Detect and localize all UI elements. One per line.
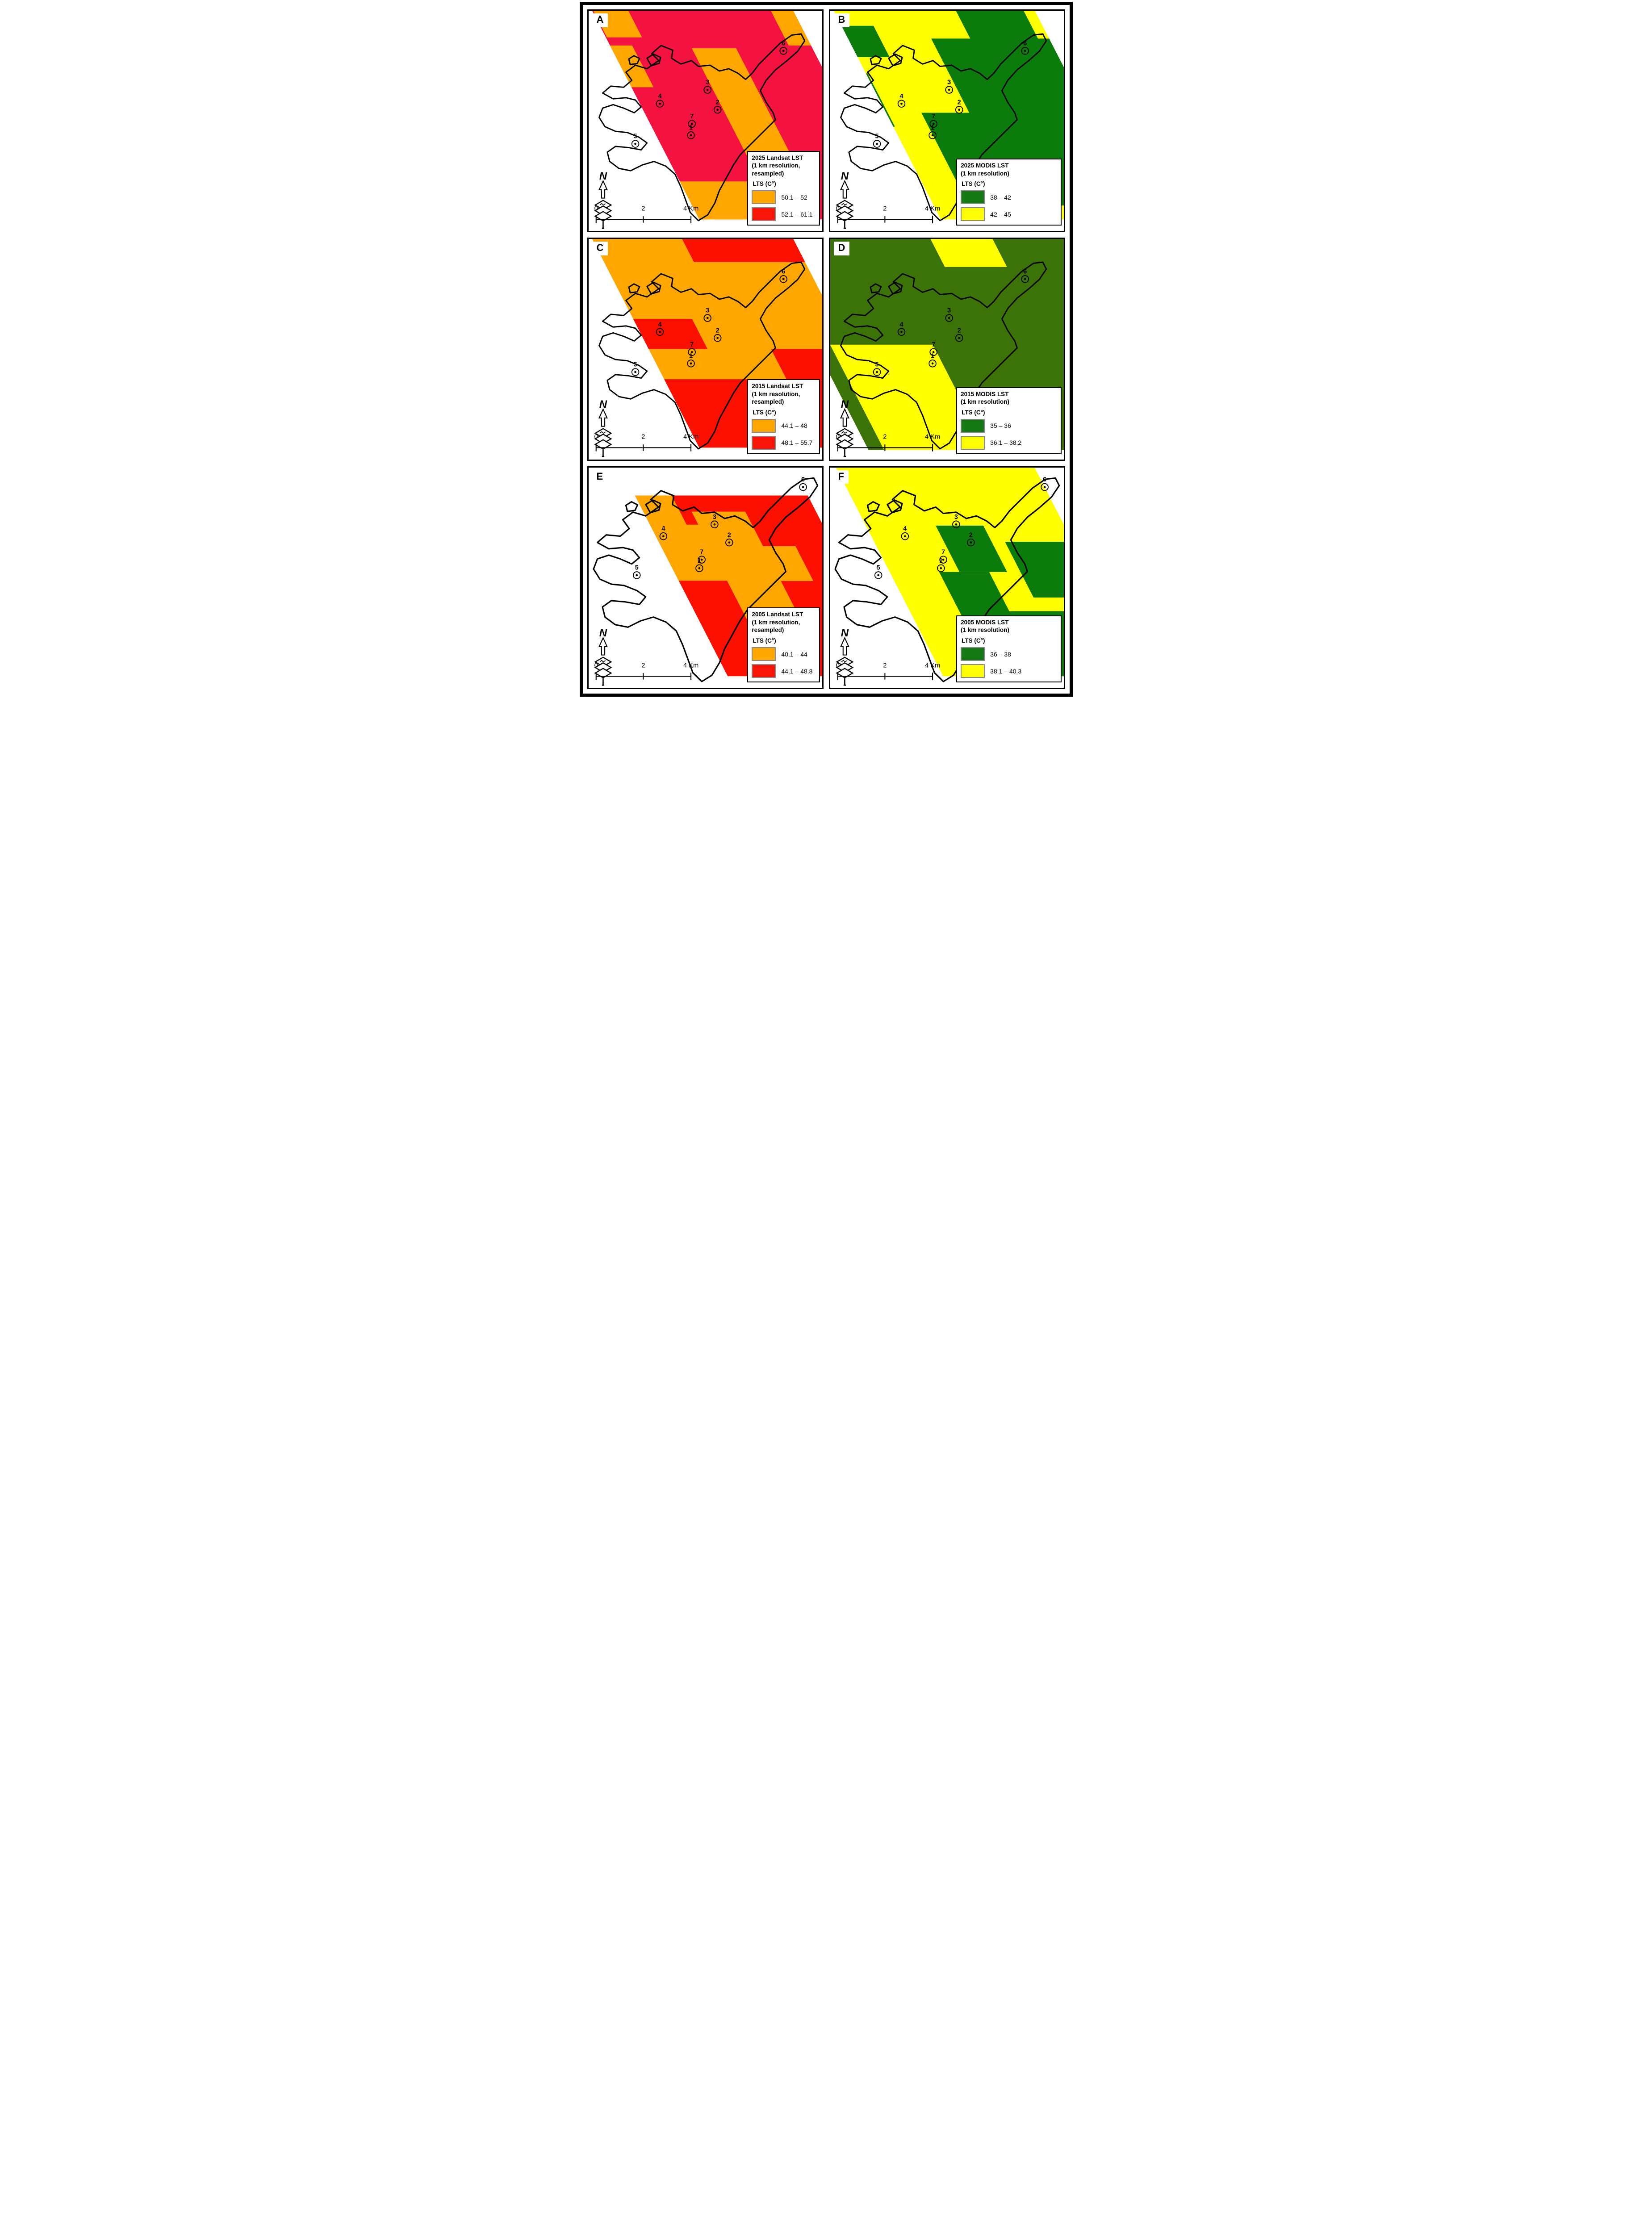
- scale-label-2: 2: [883, 434, 887, 441]
- legend-range: 50.1 – 52: [781, 194, 807, 201]
- sample-point-dot: [728, 541, 730, 544]
- legend-entry: 50.1 – 52: [752, 190, 815, 204]
- legend-title-line: (1 km resolution): [961, 398, 1057, 406]
- legend-range: 36.1 – 38.2: [990, 439, 1021, 446]
- sample-point-dot: [636, 574, 638, 576]
- sample-point-label: 7: [700, 548, 703, 556]
- sample-point-dot: [782, 50, 784, 52]
- scale-label-0: 0: [594, 205, 598, 213]
- panel-a: 1234567 N 0 2 4 Km A 2025 Landsat LST (1…: [587, 9, 824, 232]
- panel-f: 1234567 N 0 2 4 Km F 2005 MODIS LST (1 k…: [829, 466, 1065, 689]
- figure-grid: 1234567 N 0 2 4 Km A 2025 Landsat LST (1…: [580, 2, 1073, 697]
- sample-point-dot: [662, 535, 665, 537]
- sample-point-dot: [932, 351, 934, 353]
- sample-point-dot: [690, 363, 692, 365]
- legend-swatch: [961, 647, 985, 661]
- legend-unit: LTS (C°): [962, 409, 1057, 416]
- legend-swatch: [752, 190, 776, 204]
- legend-entry: 42 – 45: [961, 207, 1057, 221]
- legend-title-line: 2005 MODIS LST: [961, 619, 1057, 627]
- scale-label-2: 2: [641, 662, 645, 669]
- panel-b: 1234567 N 0 2 4 Km B 2025 MODIS LST (1 k…: [829, 9, 1065, 232]
- legend-entry: 38 – 42: [961, 190, 1057, 204]
- sample-point-dot: [876, 371, 878, 373]
- north-arrow-icon: [595, 409, 611, 456]
- sample-point-dot: [900, 331, 903, 333]
- sample-point-label: 7: [690, 341, 694, 348]
- scale-bar: 0 2 4 Km: [594, 205, 698, 223]
- north-arrow-icon: [595, 638, 611, 685]
- legend-entry: 48.1 – 55.7: [752, 436, 815, 450]
- scale-label-0: 0: [836, 662, 839, 669]
- sample-point-dot: [690, 123, 693, 125]
- panel-letter: E: [592, 470, 608, 484]
- legend-title-line: (1 km resolution,: [752, 162, 815, 170]
- north-arrow-icon: [836, 638, 853, 685]
- scale-label-2: 2: [883, 205, 887, 213]
- sample-point-dot: [1024, 278, 1026, 280]
- legend-range: 38.1 – 40.3: [990, 668, 1021, 675]
- legend-title-line: (1 km resolution): [961, 170, 1057, 178]
- legend-swatch: [752, 647, 776, 661]
- legend-swatch: [752, 664, 776, 678]
- panel-letter: B: [834, 13, 850, 27]
- legend-swatch: [752, 419, 776, 433]
- legend-title-line: (1 km resolution,: [752, 619, 815, 627]
- legend: 2025 Landsat LST (1 km resolution, resam…: [747, 151, 820, 226]
- sample-point-label: 2: [727, 531, 731, 539]
- sample-point-label: 6: [1043, 476, 1046, 483]
- sample-point-label: 3: [947, 307, 951, 314]
- sample-point-label: 6: [782, 40, 785, 47]
- legend-range: 40.1 – 44: [781, 651, 807, 658]
- legend: 2005 Landsat LST (1 km resolution, resam…: [747, 607, 820, 682]
- legend-entry: 44.1 – 48: [752, 419, 815, 433]
- sample-point-label: 3: [706, 79, 709, 86]
- panel-letter: C: [592, 242, 608, 255]
- sample-point-label: 7: [690, 113, 694, 120]
- sample-point-label: 5: [875, 361, 878, 368]
- sample-point-label: 3: [706, 307, 709, 314]
- panel-d: 1234567 N 0 2 4 Km D 2015 MODIS LST (1 k…: [829, 238, 1065, 460]
- legend-title-line: (1 km resolution,: [752, 390, 815, 398]
- legend-range: 44.1 – 48.8: [781, 668, 812, 675]
- legend-unit: LTS (C°): [753, 409, 815, 416]
- legend-title-line: resampled): [752, 626, 815, 634]
- sample-point-label: 4: [658, 93, 662, 100]
- sample-point-label: 3: [947, 79, 951, 86]
- north-arrow-icon: [836, 409, 853, 456]
- scale-label-4km: 4 Km: [683, 205, 698, 213]
- sample-point-dot: [782, 278, 784, 280]
- legend-entry: 36.1 – 38.2: [961, 436, 1057, 450]
- sample-point-label: 4: [661, 525, 665, 532]
- sample-point-label: 7: [932, 113, 935, 120]
- scale-label-0: 0: [836, 205, 839, 213]
- sample-point-dot: [706, 317, 708, 319]
- scale-label-0: 0: [594, 434, 598, 441]
- sample-point-label: 7: [941, 548, 945, 556]
- sample-point-label: 2: [969, 531, 972, 539]
- sample-point-dot: [958, 337, 960, 339]
- sample-point-dot: [942, 558, 944, 560]
- sample-point-dot: [690, 134, 692, 137]
- sample-point-dot: [716, 109, 719, 111]
- scale-label-0: 0: [836, 434, 839, 441]
- sample-point-dot: [700, 558, 703, 560]
- scale-bar: 0 2 4 Km: [836, 662, 940, 680]
- scale-label-2: 2: [641, 205, 645, 213]
- scale-label-2: 2: [641, 434, 645, 441]
- sample-point-dot: [876, 143, 878, 145]
- legend-title-line: resampled): [752, 170, 815, 178]
- legend-unit: LTS (C°): [753, 180, 815, 187]
- sample-point-dot: [955, 523, 957, 526]
- legend-title-line: 2025 MODIS LST: [961, 162, 1057, 170]
- sample-point-label: 5: [875, 133, 878, 140]
- sample-point-dot: [634, 371, 636, 373]
- legend-swatch: [961, 190, 985, 204]
- legend-title-line: 2015 Landsat LST: [752, 382, 815, 390]
- sample-point-label: 2: [957, 99, 961, 106]
- sample-point-dot: [634, 143, 636, 145]
- sample-point-dot: [931, 363, 933, 365]
- legend-title-line: (1 km resolution): [961, 626, 1057, 634]
- sample-point-label: 3: [712, 513, 716, 520]
- legend-unit: LTS (C°): [753, 637, 815, 644]
- panel-letter: A: [592, 13, 608, 27]
- scale-bar: 0 2 4 Km: [594, 434, 698, 452]
- legend: 2025 MODIS LST (1 km resolution) LTS (C°…: [956, 159, 1061, 226]
- sample-point-label: 6: [782, 268, 785, 276]
- legend-entry: 35 – 36: [961, 419, 1057, 433]
- sample-point-dot: [932, 123, 934, 125]
- sample-point-dot: [659, 103, 661, 105]
- sample-point-dot: [713, 523, 715, 526]
- legend-range: 36 – 38: [990, 651, 1011, 658]
- sample-point-dot: [940, 567, 942, 569]
- sample-point-label: 4: [903, 525, 907, 532]
- legend-entry: 38.1 – 40.3: [961, 664, 1057, 678]
- scale-bar: 0 2 4 Km: [836, 205, 940, 223]
- sample-point-label: 2: [715, 327, 719, 335]
- legend: 2015 Landsat LST (1 km resolution, resam…: [747, 379, 820, 454]
- sample-point-label: 5: [633, 361, 637, 368]
- sample-point-label: 1: [931, 124, 934, 131]
- sample-point-label: 6: [801, 476, 805, 483]
- legend-entry: 40.1 – 44: [752, 647, 815, 661]
- sample-point-label: 1: [689, 353, 693, 360]
- sample-point-label: 3: [954, 513, 958, 520]
- sample-point-dot: [690, 351, 693, 353]
- sample-point-dot: [706, 89, 708, 91]
- sample-point-label: 1: [931, 353, 934, 360]
- sample-point-label: 1: [689, 124, 693, 131]
- legend-swatch: [961, 436, 985, 450]
- legend-range: 35 – 36: [990, 422, 1011, 429]
- legend-entry: 44.1 – 48.8: [752, 664, 815, 678]
- scale-label-0: 0: [594, 662, 598, 669]
- legend-entry: 36 – 38: [961, 647, 1057, 661]
- legend-range: 38 – 42: [990, 194, 1011, 201]
- sample-point-dot: [931, 134, 933, 137]
- sample-point-dot: [716, 337, 719, 339]
- legend: 2005 MODIS LST (1 km resolution) LTS (C°…: [956, 615, 1061, 682]
- sample-point-label: 4: [658, 321, 662, 328]
- legend-swatch: [961, 664, 985, 678]
- sample-point-dot: [698, 567, 700, 569]
- legend-entry: 52.1 – 61.1: [752, 207, 815, 221]
- sample-point-dot: [958, 109, 960, 111]
- panel-e: 1234567 N 0 2 4 Km E 2005 Landsat LST (1…: [587, 466, 824, 689]
- legend-swatch: [961, 419, 985, 433]
- panel-letter: D: [834, 242, 850, 255]
- legend-title-line: resampled): [752, 398, 815, 406]
- legend-swatch: [752, 207, 776, 221]
- sample-point-label: 4: [899, 321, 903, 328]
- sample-point-label: 5: [876, 564, 880, 571]
- sample-point-dot: [900, 103, 903, 105]
- scale-label-4km: 4 Km: [924, 662, 940, 669]
- north-arrow-icon: [836, 181, 853, 228]
- sample-point-dot: [904, 535, 906, 537]
- legend-unit: LTS (C°): [962, 637, 1057, 644]
- sample-point-label: 2: [715, 99, 719, 106]
- legend-title-line: 2015 MODIS LST: [961, 390, 1057, 398]
- panel-c: 1234567 N 0 2 4 Km C 2015 Landsat LST (1…: [587, 238, 824, 460]
- sample-point-label: 5: [633, 133, 637, 140]
- scale-bar: 0 2 4 Km: [594, 662, 698, 680]
- scale-label-2: 2: [883, 662, 887, 669]
- legend-unit: LTS (C°): [962, 180, 1057, 187]
- sample-point-dot: [970, 541, 972, 544]
- north-arrow-icon: [595, 181, 611, 228]
- legend-swatch: [961, 207, 985, 221]
- sample-point-label: 6: [1023, 40, 1027, 47]
- panel-letter: F: [834, 470, 849, 484]
- legend-range: 44.1 – 48: [781, 422, 807, 429]
- sample-point-dot: [1024, 50, 1026, 52]
- scale-label-4km: 4 Km: [924, 434, 940, 441]
- sample-point-label: 4: [899, 93, 903, 100]
- legend-range: 48.1 – 55.7: [781, 439, 812, 446]
- scale-label-4km: 4 Km: [683, 662, 698, 669]
- sample-point-label: 5: [635, 564, 638, 571]
- legend-swatch: [752, 436, 776, 450]
- sample-point-dot: [948, 317, 950, 319]
- scale-label-4km: 4 Km: [683, 434, 698, 441]
- legend-title-line: 2025 Landsat LST: [752, 154, 815, 162]
- sample-point-dot: [802, 486, 804, 488]
- sample-point-dot: [877, 574, 879, 576]
- legend-title-line: 2005 Landsat LST: [752, 611, 815, 619]
- sample-point-label: 7: [932, 341, 935, 348]
- sample-point-label: 6: [1023, 268, 1027, 276]
- sample-point-dot: [948, 89, 950, 91]
- legend-range: 42 – 45: [990, 211, 1011, 218]
- sample-point-dot: [1043, 486, 1046, 488]
- legend: 2015 MODIS LST (1 km resolution) LTS (C°…: [956, 387, 1061, 454]
- sample-point-label: 2: [957, 327, 961, 335]
- legend-range: 52.1 – 61.1: [781, 211, 812, 218]
- sample-point-dot: [659, 331, 661, 333]
- scale-label-4km: 4 Km: [924, 205, 940, 213]
